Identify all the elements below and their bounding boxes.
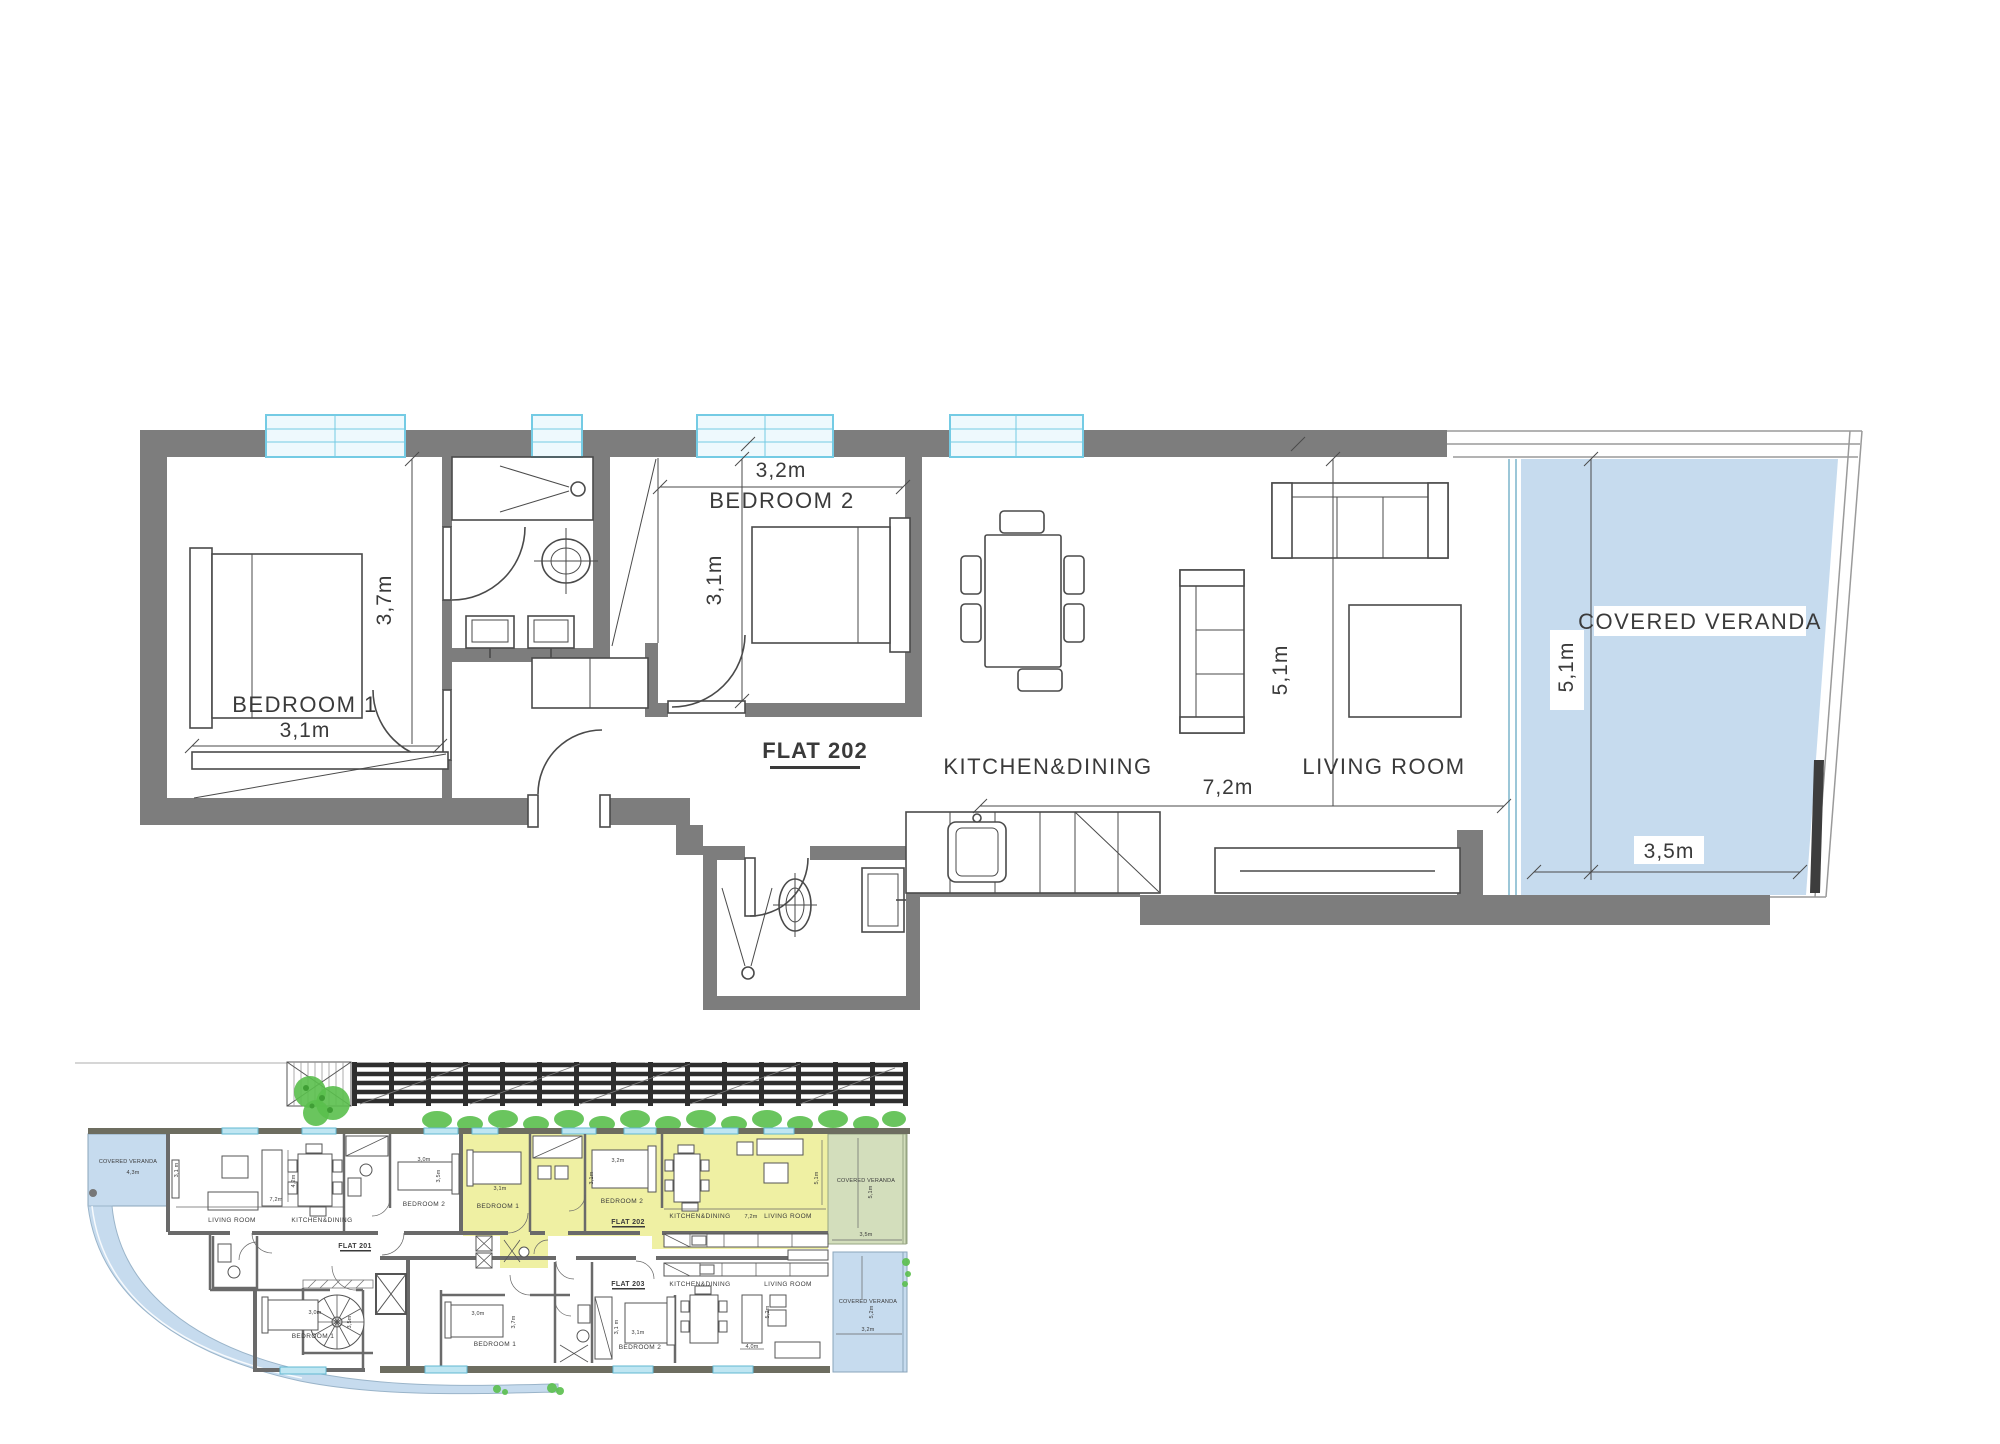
sofa-three-seat xyxy=(1272,483,1448,558)
f203-bed2-w: 3,1m xyxy=(631,1330,644,1336)
f203-living: LIVING ROOM xyxy=(764,1281,812,1288)
entry-door-frame xyxy=(528,795,538,827)
window-bedroom1 xyxy=(266,415,405,457)
f203-bed1: BEDROOM 1 xyxy=(474,1341,517,1348)
f202-veranda-label: COVERED VERANDA xyxy=(837,1178,895,1184)
main-covered-veranda xyxy=(1447,431,1862,897)
f203-veranda-h: 5,2m xyxy=(869,1305,875,1318)
f202-flat-label: FLAT 202 xyxy=(611,1219,644,1226)
f201-veranda-label: COVERED VERANDA xyxy=(99,1159,157,1165)
f202-kitchen-w: 7,2m xyxy=(744,1214,757,1220)
window-bedroom2 xyxy=(697,415,833,457)
bedroom1-width: 3,1m xyxy=(280,719,331,742)
f203-living-h: 5,2m xyxy=(765,1305,771,1318)
f201-flat-label: FLAT 201 xyxy=(338,1243,371,1250)
f202-living-h: 5,1m xyxy=(814,1171,820,1184)
bedroom1-door-leaf xyxy=(443,690,451,760)
f203-veranda-w: 3,2m xyxy=(861,1327,874,1333)
site-top xyxy=(75,1062,908,1132)
bedroom2-height: 3,1m xyxy=(703,555,726,606)
sofa-two-seat xyxy=(1180,570,1244,733)
flat-202-label: FLAT 202 xyxy=(762,738,867,763)
f203-living-w: 4,0m xyxy=(745,1344,758,1350)
living-label: LIVING ROOM xyxy=(1302,754,1465,779)
tv-bench xyxy=(1215,848,1460,893)
sink-1 xyxy=(466,616,514,648)
coffee-table xyxy=(1349,605,1461,717)
f201-bed2-w: 3,0m xyxy=(417,1157,430,1163)
veranda-height: 5,1m xyxy=(1555,642,1578,693)
bedroom2-width: 3,2m xyxy=(756,459,807,482)
main-floor-plan: BEDROOM 1 3,1m 3,7m BEDROOM 2 3,2m 3,1m … xyxy=(140,415,1862,1010)
f201-bed1-h: 3,5m xyxy=(347,1315,353,1328)
bedroom2-label: BEDROOM 2 xyxy=(709,488,855,513)
f202-veranda-w: 3,5m xyxy=(859,1232,872,1238)
f201-bed1: BEDROOM 1 xyxy=(292,1333,335,1340)
f203-kitchen: KITCHEN&DINING xyxy=(669,1281,730,1288)
sink-2 xyxy=(528,616,574,648)
f201-veranda-w: 4,3m xyxy=(126,1170,139,1176)
veranda-label: COVERED VERANDA xyxy=(1578,609,1822,634)
overview-plan: COVERED VERANDA 4,3m 3,1 m LIVING ROOM K… xyxy=(75,1062,911,1395)
floorplan-drawing: BEDROOM 1 3,1m 3,7m BEDROOM 2 3,2m 3,1m … xyxy=(0,0,2000,1444)
f202-bed2-w: 3,2m xyxy=(611,1158,624,1164)
window-kitchen xyxy=(950,415,1083,457)
kitchen-counter xyxy=(906,812,1160,893)
dining-table xyxy=(961,511,1084,691)
floorplan-page: BEDROOM 1 3,1m 3,7m BEDROOM 2 3,2m 3,1m … xyxy=(0,0,2000,1444)
f201-kitchen-h: 4,2m xyxy=(291,1174,297,1187)
f202-living: LIVING ROOM xyxy=(764,1213,812,1220)
bedroom1-label: BEDROOM 1 xyxy=(232,692,378,717)
pergola xyxy=(352,1062,908,1106)
kitchen-label: KITCHEN&DINING xyxy=(943,754,1152,779)
living-height: 5,1m xyxy=(1269,645,1292,696)
f202-kitchen: KITCHEN&DINING xyxy=(669,1213,730,1220)
flat202-veranda-green xyxy=(828,1134,906,1244)
f202-bed1-w: 3,1m xyxy=(493,1186,506,1192)
f201-bed1-w: 3,0m xyxy=(308,1310,321,1316)
f202-bed1: BEDROOM 1 xyxy=(477,1203,520,1210)
f202-bed2-h: 3,1m xyxy=(589,1171,595,1184)
bathroom1-fixtures xyxy=(452,457,598,658)
window-bathroom xyxy=(532,415,582,457)
kitchen-width: 7,2m xyxy=(1203,776,1254,799)
f203-bed1-w: 3,0m xyxy=(471,1311,484,1317)
f203-bed2: BEDROOM 2 xyxy=(619,1344,662,1351)
f203-bed2-h: 3,1 m xyxy=(614,1319,620,1334)
f202-veranda-h: 5,1m xyxy=(868,1185,874,1198)
f201-bed2: BEDROOM 2 xyxy=(403,1201,446,1208)
f201-bed2-h: 3,5m xyxy=(436,1169,442,1182)
f203-flat-label: FLAT 203 xyxy=(611,1281,644,1288)
f203-bed1-h: 3,7m xyxy=(511,1315,517,1328)
f201-kitchen: KITCHEN&DINING xyxy=(291,1217,352,1224)
wc-door-leaf xyxy=(745,858,755,916)
f202-bed2: BEDROOM 2 xyxy=(601,1198,644,1205)
f203-veranda-label: COVERED VERANDA xyxy=(839,1299,897,1305)
f201-living: LIVING ROOM xyxy=(208,1217,256,1224)
f201-kitchen-w: 7,2m xyxy=(269,1197,282,1203)
shower-head xyxy=(742,967,754,979)
flat-202-underline xyxy=(770,766,860,769)
f201-veranda-h: 3,1 m xyxy=(174,1162,180,1177)
bed-bedroom2 xyxy=(752,518,910,652)
bathroom-door-leaf xyxy=(443,527,451,600)
bedroom1-height: 3,7m xyxy=(373,575,396,626)
shower-head xyxy=(571,482,585,496)
veranda-width: 3,5m xyxy=(1644,840,1695,863)
hall-closet xyxy=(532,658,648,708)
